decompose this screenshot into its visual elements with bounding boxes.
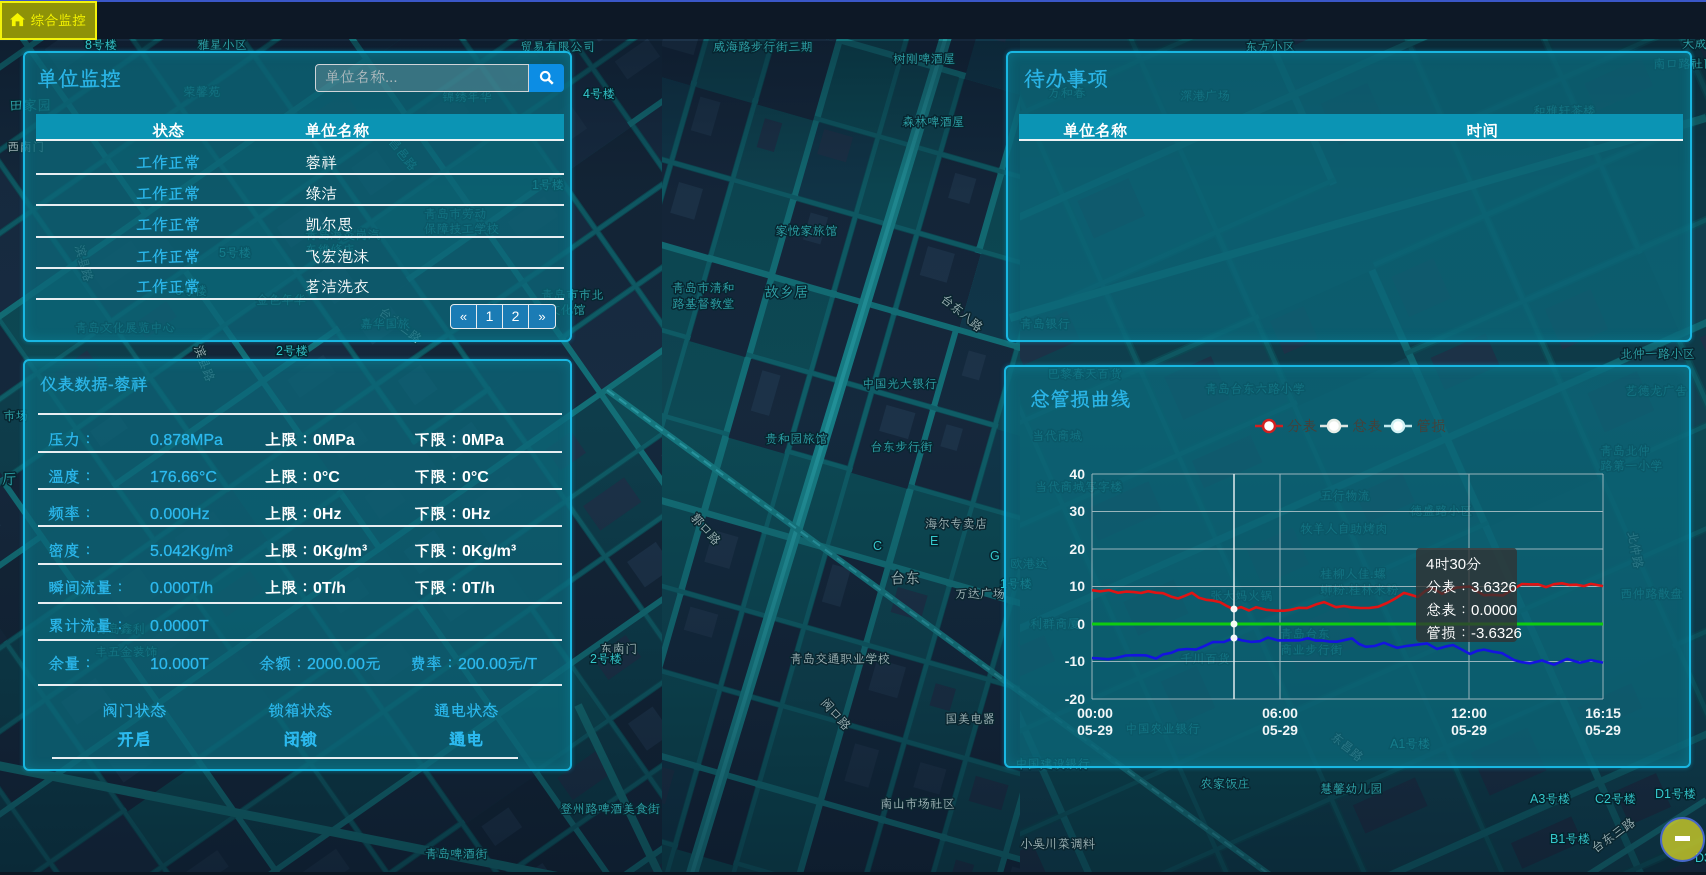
svg-text:4时30分: 4时30分 <box>1426 556 1481 573</box>
svg-text:大成路: 大成路 <box>1682 37 1706 51</box>
svg-text:青岛交通职业学校: 青岛交通职业学校 <box>790 652 891 666</box>
svg-text:D1号楼: D1号楼 <box>1655 787 1696 801</box>
svg-text:-10: -10 <box>1065 653 1085 669</box>
svg-text:总表: 总表 <box>1352 418 1382 435</box>
svg-text:40: 40 <box>1069 466 1085 482</box>
svg-text:C2号楼: C2号楼 <box>1595 792 1636 806</box>
svg-text:管损: 管损 <box>1416 418 1446 435</box>
svg-text:树刚啤酒屋: 树刚啤酒屋 <box>893 52 956 66</box>
svg-text:贵和园旅馆: 贵和园旅馆 <box>765 432 828 446</box>
svg-text:2号楼: 2号楼 <box>590 652 622 666</box>
svg-text:分表：3.6326: 分表：3.6326 <box>1426 579 1517 596</box>
svg-text:家悦家旅馆: 家悦家旅馆 <box>775 224 838 238</box>
svg-text:2号楼: 2号楼 <box>276 344 308 358</box>
svg-text:登州路啤酒美食街: 登州路啤酒美食街 <box>560 802 661 816</box>
svg-text:16:15: 16:15 <box>1585 705 1621 721</box>
svg-text:森林啤酒屋: 森林啤酒屋 <box>902 115 965 129</box>
svg-text:12:00: 12:00 <box>1451 705 1487 721</box>
svg-text:10: 10 <box>1069 578 1085 594</box>
svg-text:05-29: 05-29 <box>1585 722 1621 738</box>
svg-text:0: 0 <box>1077 616 1085 632</box>
svg-text:农家饭庄: 农家饭庄 <box>1200 777 1250 791</box>
svg-text:中国光大银行: 中国光大银行 <box>862 377 938 391</box>
svg-text:南山市场社区: 南山市场社区 <box>880 797 955 811</box>
svg-text:05-29: 05-29 <box>1262 722 1298 738</box>
svg-text:台东步行街: 台东步行街 <box>870 440 933 454</box>
svg-text:分表: 分表 <box>1287 418 1317 435</box>
svg-text:青岛市清和: 青岛市清和 <box>672 281 735 295</box>
svg-text:总表：0.0000: 总表：0.0000 <box>1426 602 1517 619</box>
svg-text:05-29: 05-29 <box>1451 722 1487 738</box>
svg-text:B1号楼: B1号楼 <box>1550 832 1591 846</box>
svg-text:C: C <box>873 539 882 553</box>
svg-text:小吴川菜调料: 小吴川菜调料 <box>1020 837 1096 851</box>
svg-text:06:00: 06:00 <box>1262 705 1298 721</box>
svg-text:20: 20 <box>1069 541 1085 557</box>
svg-text:青岛啤酒街: 青岛啤酒街 <box>425 847 488 861</box>
svg-text:故乡居: 故乡居 <box>764 284 809 301</box>
svg-text:00:00: 00:00 <box>1077 705 1113 721</box>
svg-text:台东: 台东 <box>890 570 920 587</box>
svg-text:万达广场: 万达广场 <box>955 587 1005 601</box>
svg-text:E: E <box>930 534 938 548</box>
svg-text:威海路步行街三期: 威海路步行街三期 <box>713 40 813 54</box>
svg-text:厅: 厅 <box>2 471 17 488</box>
svg-text:A3号楼: A3号楼 <box>1530 792 1571 806</box>
svg-text:4号楼: 4号楼 <box>583 87 615 101</box>
svg-text:8号楼: 8号楼 <box>85 38 117 52</box>
svg-text:05-29: 05-29 <box>1077 722 1113 738</box>
svg-text:管损：-3.6326: 管损：-3.6326 <box>1426 625 1522 642</box>
svg-text:G: G <box>990 549 1000 563</box>
svg-text:国美电器: 国美电器 <box>945 712 995 726</box>
svg-text:海尔专卖店: 海尔专卖店 <box>925 517 988 531</box>
svg-text:30: 30 <box>1069 503 1085 519</box>
svg-text:北仲一路小区: 北仲一路小区 <box>1620 347 1695 361</box>
svg-text:雅星小区: 雅星小区 <box>197 38 247 52</box>
svg-text:路基督教堂: 路基督教堂 <box>672 297 735 311</box>
svg-text:慧馨幼儿园: 慧馨幼儿园 <box>1320 782 1383 796</box>
